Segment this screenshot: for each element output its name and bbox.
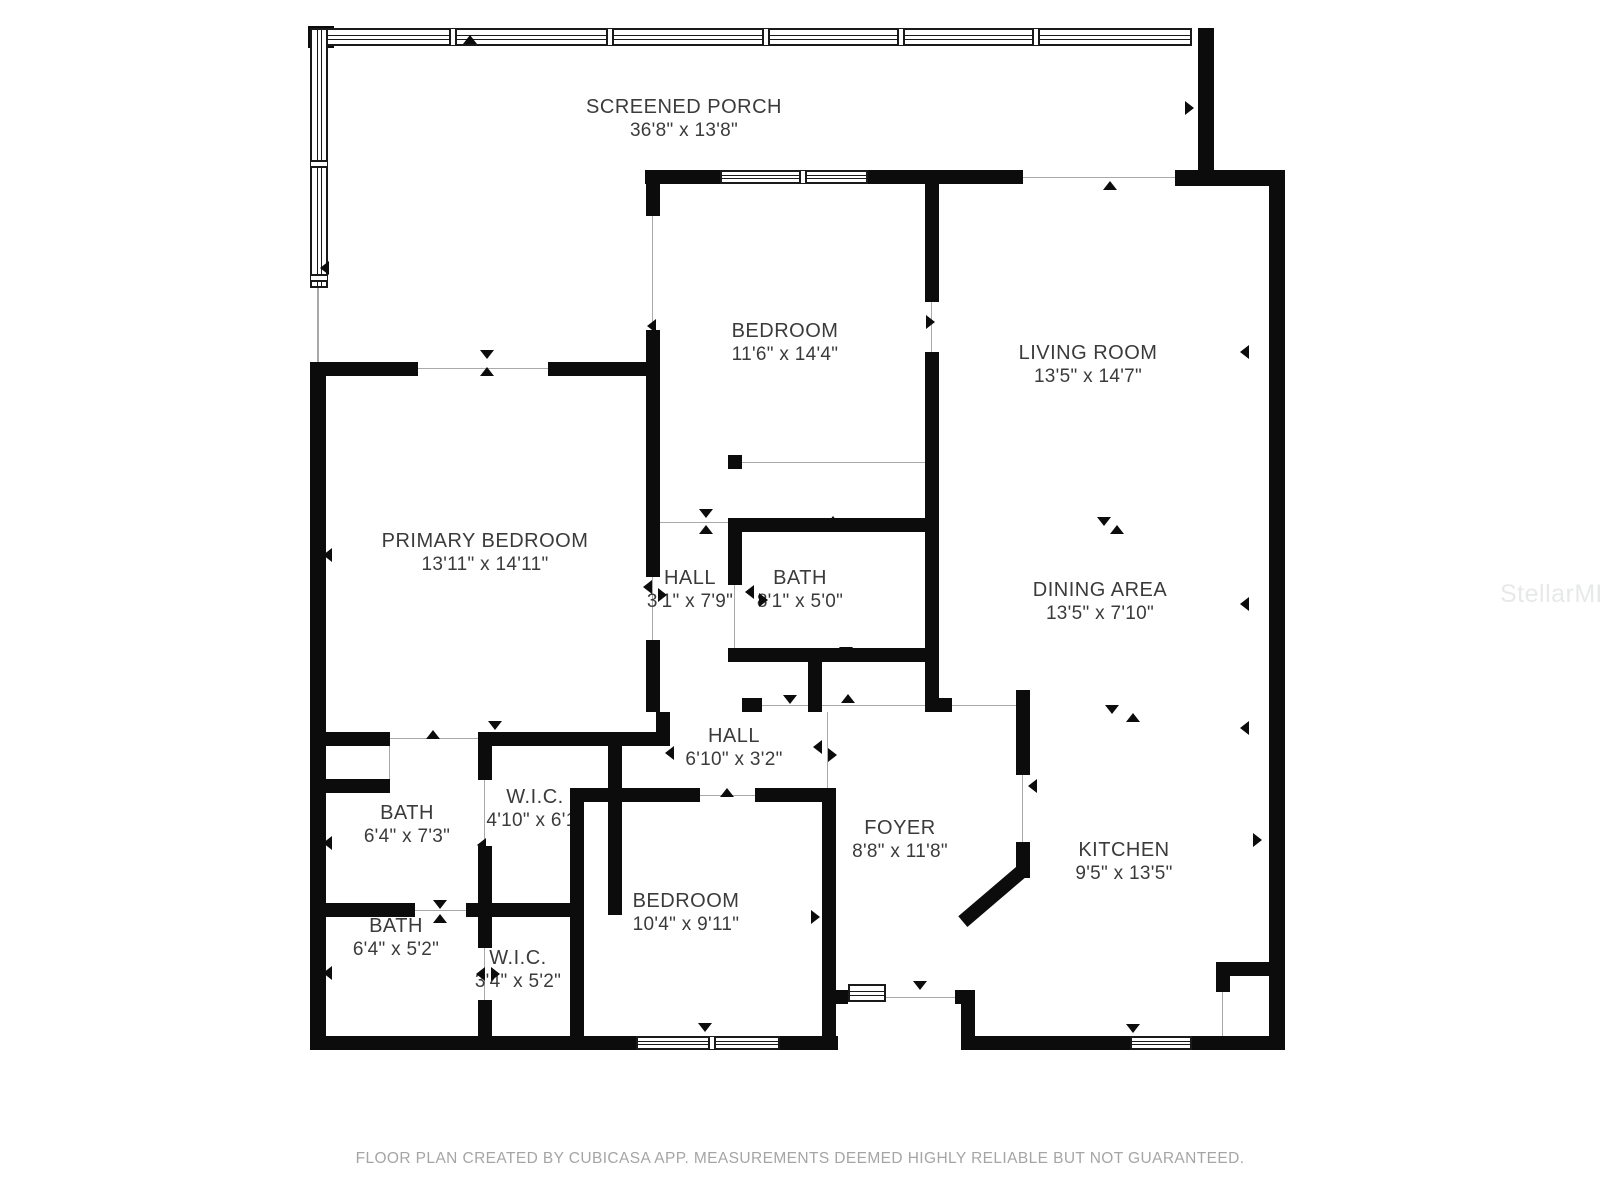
window-glass-line [722,178,866,179]
wall [925,698,952,712]
window-glass-line [850,991,884,992]
door-arrow [1103,181,1117,190]
wall [728,648,939,662]
wall [961,1036,1132,1050]
door-arrow [745,585,754,599]
door-arrow [476,967,485,981]
window-mullion [762,29,770,45]
room-dimensions: 6'10" x 3'2" [685,748,782,772]
door-arrow [647,319,656,333]
room-dimensions: 36'8" x 13'8" [586,119,782,143]
opening-line [484,780,485,846]
door-arrow [1240,597,1249,611]
room-dimensions: 9'5" x 13'5" [1075,862,1172,886]
door-arrow [323,836,332,850]
opening-line [1022,775,1023,842]
floor-plan-canvas: StellarMLS SCREENED PORCH36'8" x 13'8"BE… [0,0,1600,1200]
window-mullion [311,160,327,168]
door-arrow [433,900,447,909]
opening-line [415,910,466,911]
window-mullion [449,29,457,45]
door-arrow [477,838,486,852]
wall [822,990,848,1004]
room-name: HALL [685,724,782,748]
window [1130,1036,1192,1050]
wall [728,455,742,469]
door-arrow [463,35,477,44]
window [848,984,886,1002]
window-mullion [708,1037,716,1049]
window-glass-line [312,35,1190,36]
window-mullion [606,29,614,45]
floor-plan-drawing: SCREENED PORCH36'8" x 13'8"BEDROOM11'6" … [0,0,1600,1200]
wall [570,788,700,802]
door-arrow [665,746,674,760]
wall [646,362,660,577]
opening-line [1023,177,1175,178]
door-arrow [491,967,500,981]
room-name: FOYER [852,816,948,840]
room-label-bedroom-1: BEDROOM11'6" x 14'4" [732,319,839,367]
room-name: KITCHEN [1075,838,1172,862]
wall [310,362,418,376]
room-label-wic-lower: W.I.C.3'4" x 5'2" [475,946,561,994]
room-name: PRIMARY BEDROOM [382,529,589,553]
door-arrow [926,315,935,329]
room-dimensions: 13'11" x 14'11" [382,553,589,577]
room-label-primary-bedroom: PRIMARY BEDROOM13'11" x 14'11" [382,529,589,577]
door-arrow [323,966,332,980]
door-arrow [841,694,855,703]
wall [570,788,584,1036]
opening-line [742,462,925,463]
opening-line [652,216,653,330]
door-arrow [759,593,768,607]
diagonal-wall [958,863,1029,927]
room-label-dining-area: DINING AREA13'5" x 7'10" [1033,578,1167,626]
door-arrow [811,910,820,924]
wall [310,732,390,746]
wall [1190,1036,1285,1050]
wall [742,698,762,712]
room-name: W.I.C. [475,946,561,970]
door-arrow [433,914,447,923]
room-label-kitchen: KITCHEN9'5" x 13'5" [1075,838,1172,886]
room-label-bath-upper: BATH6'4" x 7'3" [364,801,450,849]
wall [310,779,390,793]
window-mullion [311,274,327,282]
room-label-screened-porch: SCREENED PORCH36'8" x 13'8" [586,95,782,143]
window-glass-line [312,39,1190,40]
door-arrow [826,516,840,525]
door-arrow [320,261,329,275]
door-arrow [698,1023,712,1032]
wall [925,170,939,302]
wall [492,732,670,746]
wall [955,990,975,1004]
opening-line [952,705,1016,706]
door-arrow [480,367,494,376]
room-name: BATH [757,566,843,590]
door-arrow [1097,517,1111,526]
room-name: BATH [364,801,450,825]
room-dimensions: 3'4" x 5'2" [475,970,561,994]
opening-line [660,522,728,523]
room-dimensions: 10'4" x 9'11" [633,913,740,937]
window-glass-line [850,995,884,996]
room-dimensions: 11'6" x 14'4" [732,343,839,367]
window-glass-line [722,175,866,176]
window-glass-line [321,30,322,286]
door-arrow [1240,721,1249,735]
door-arrow [813,740,822,754]
window-glass-line [317,30,318,286]
room-dimensions: 6'4" x 5'2" [353,938,439,962]
wall [778,1036,838,1050]
door-arrow [699,525,713,534]
room-name: BEDROOM [633,889,740,913]
window [310,28,1192,46]
room-label-living-room: LIVING ROOM13'5" x 14'7" [1019,341,1158,389]
wall [1216,976,1230,992]
footer-disclaimer: FLOOR PLAN CREATED BY CUBICASA APP. MEAS… [0,1150,1600,1168]
door-arrow [1126,713,1140,722]
door-arrow [1105,705,1119,714]
window-mullion [799,171,807,183]
door-arrow [488,721,502,730]
wall [961,1004,975,1036]
wall [478,732,492,780]
door-arrow [839,647,853,656]
wall [310,362,326,1050]
room-name: SCREENED PORCH [586,95,782,119]
wall [1269,170,1285,1050]
door-arrow [720,788,734,797]
opening-line [762,705,925,706]
door-arrow [783,695,797,704]
room-dimensions: 6'4" x 7'3" [364,825,450,849]
opening-line [1222,992,1223,1036]
opening-line [317,288,319,362]
door-arrow [323,548,332,562]
wall [808,662,822,712]
room-dimensions: 13'5" x 14'7" [1019,365,1158,389]
door-arrow [1110,525,1124,534]
opening-line [886,997,955,998]
door-arrow [699,509,713,518]
wall [310,1036,640,1050]
wall [728,532,742,585]
door-arrow [426,730,440,739]
room-dimensions: 8'1" x 5'0" [757,590,843,614]
wall [310,903,415,917]
window-mullion [897,29,905,45]
room-dimensions: 8'8" x 11'8" [852,840,948,864]
wall [548,362,660,376]
wall [1198,28,1214,184]
wall [466,903,570,917]
door-arrow [523,736,537,745]
door-arrow [1240,345,1249,359]
room-name: BATH [353,914,439,938]
opening-line [389,746,390,779]
wall [646,640,660,712]
wall [478,917,492,948]
wall [1216,962,1284,976]
room-label-bedroom-2: BEDROOM10'4" x 9'11" [633,889,740,937]
door-arrow [1126,1024,1140,1033]
door-arrow [1253,833,1262,847]
window-glass-line [1132,1041,1190,1042]
window [310,28,328,288]
wall [866,170,1023,184]
door-arrow [643,580,652,594]
wall [755,788,822,802]
window [720,170,868,184]
window-mullion [1032,29,1040,45]
room-name: DINING AREA [1033,578,1167,602]
wall [608,746,622,915]
wall [646,170,660,216]
door-arrow [1185,101,1194,115]
opening-line [734,585,735,648]
room-label-foyer: FOYER8'8" x 11'8" [852,816,948,864]
door-arrow [828,748,837,762]
door-arrow [480,350,494,359]
room-dimensions: 13'5" x 7'10" [1033,602,1167,626]
room-name: LIVING ROOM [1019,341,1158,365]
wall [1016,690,1030,775]
room-label-bath-lower: BATH6'4" x 5'2" [353,914,439,962]
window-glass-line [1132,1044,1190,1045]
wall [478,1000,492,1036]
door-arrow [658,588,667,602]
window [636,1036,780,1050]
room-label-bath-main: BATH8'1" x 5'0" [757,566,843,614]
door-arrow [913,981,927,990]
room-label-hall-lower: HALL6'10" x 3'2" [685,724,782,772]
room-name: BEDROOM [732,319,839,343]
door-arrow [1028,779,1037,793]
